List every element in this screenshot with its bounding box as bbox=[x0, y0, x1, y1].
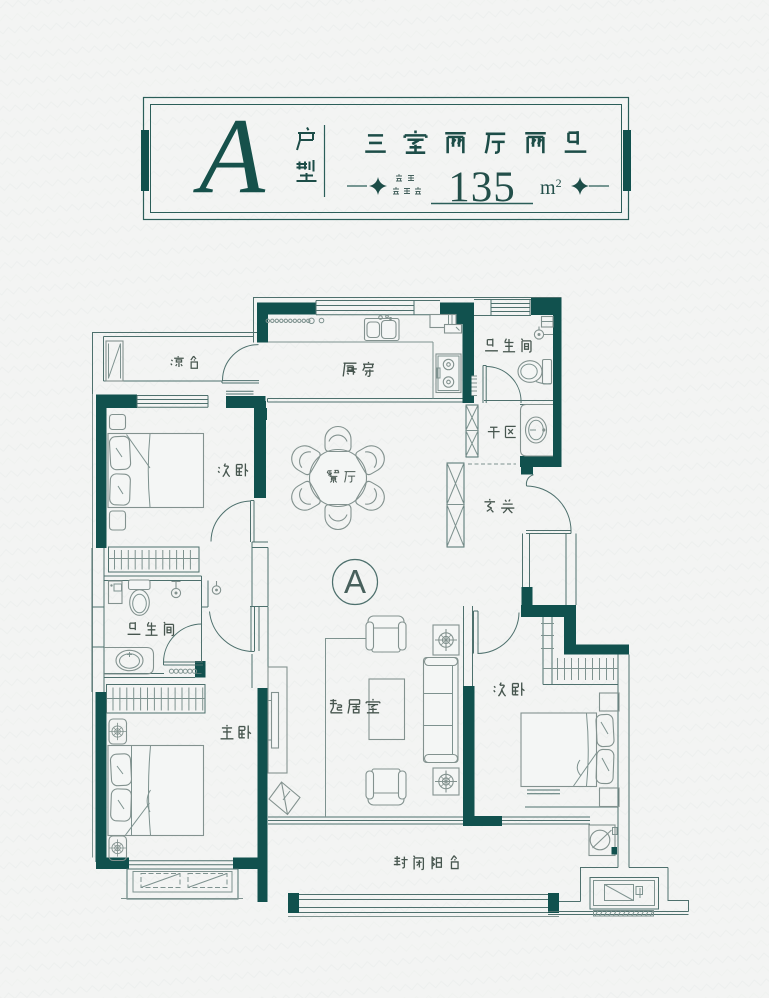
svg-text:A: A bbox=[344, 563, 366, 600]
svg-text:A: A bbox=[193, 97, 266, 216]
